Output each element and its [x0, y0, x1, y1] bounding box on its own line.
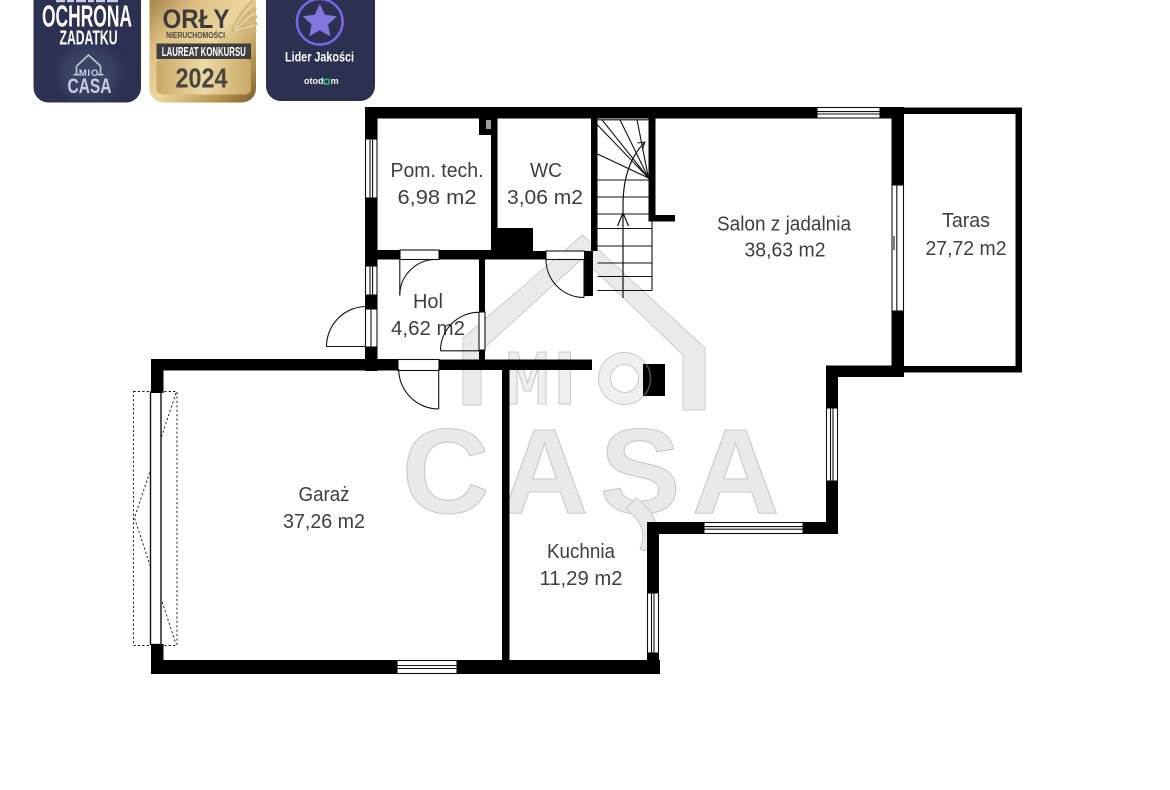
- svg-text:11,29 m2: 11,29 m2: [540, 568, 623, 590]
- svg-text:6,98 m2: 6,98 m2: [398, 187, 477, 209]
- svg-text:Garaż: Garaż: [299, 484, 350, 506]
- svg-text:Taras: Taras: [942, 210, 990, 232]
- svg-text:Hol: Hol: [413, 291, 443, 313]
- svg-text:CASA: CASA: [402, 403, 791, 539]
- svg-text:Salon z jadalnia: Salon z jadalnia: [717, 214, 852, 236]
- svg-text:38,63 m2: 38,63 m2: [745, 240, 826, 262]
- svg-text:LAUREAT KONKURSU: LAUREAT KONKURSU: [162, 44, 246, 59]
- svg-text:otod: otod: [304, 76, 324, 86]
- svg-text:Pom. tech.: Pom. tech.: [391, 160, 484, 182]
- svg-text:27,72 m2: 27,72 m2: [926, 238, 1007, 260]
- svg-text:m: m: [331, 76, 339, 86]
- svg-text:ZADATKU: ZADATKU: [60, 28, 118, 50]
- svg-text:2024: 2024: [176, 63, 228, 94]
- svg-text:3,06 m2: 3,06 m2: [507, 187, 583, 209]
- svg-text:Kuchnia: Kuchnia: [547, 541, 616, 563]
- svg-text:WC: WC: [530, 160, 562, 182]
- svg-text:Lider Jakości: Lider Jakości: [285, 50, 354, 65]
- svg-text:37,26 m2: 37,26 m2: [283, 511, 365, 533]
- svg-text:CASA: CASA: [68, 75, 112, 98]
- svg-text:NIERUCHOMOŚCI: NIERUCHOMOŚCI: [166, 29, 225, 40]
